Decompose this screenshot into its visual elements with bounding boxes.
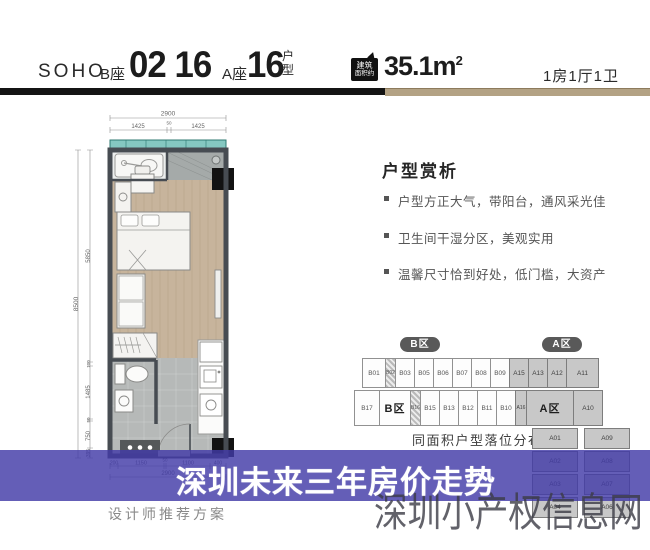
bullet-square-icon	[384, 269, 389, 274]
block-b-label: B座	[100, 63, 125, 84]
toilet-bowl	[126, 366, 148, 382]
unit-cell: B05	[414, 358, 434, 388]
unit-cell: A11	[566, 358, 599, 388]
unit-cell: B03	[395, 358, 415, 388]
unit-type-char-1: 户	[282, 49, 294, 63]
bullet-square-icon	[384, 233, 389, 238]
unit-cell: A13	[528, 358, 548, 388]
headline-banner-title: 深圳未来三年房价走势	[176, 457, 496, 502]
zone-a-label-cell: A区	[526, 390, 574, 426]
room-summary: 1房1厅1卫	[543, 65, 619, 86]
zone-b-pill: B区	[400, 337, 440, 352]
area-number: 35.1m	[384, 51, 456, 81]
area-badge-line2: 面积约	[351, 70, 378, 78]
distribution-row-2: B17 B区 B16 B15 B13 B12 B11 B10 A16 A区 A1…	[354, 390, 603, 426]
unit-cell: B13	[439, 390, 459, 426]
block-a-label: A座	[222, 63, 247, 84]
unit-cell: B06	[433, 358, 453, 388]
dim-left-e: 750	[86, 430, 92, 441]
dim-left-a: 5850	[86, 249, 92, 263]
dim-left-total: 8500	[73, 296, 80, 311]
analysis-bullet-3: 温馨尺寸恰到好处，低门槛，大资产	[384, 264, 634, 283]
sofa-cushion-1	[119, 276, 143, 300]
area-superscript: 2	[456, 53, 462, 68]
analysis-bullet-2: 卫生间干湿分区，美观实用	[384, 228, 634, 247]
water-heater	[212, 156, 220, 164]
area-badge: 建筑 面积约	[351, 58, 378, 81]
unit-cell: B08	[471, 358, 491, 388]
analysis-bullet-1-text: 户型方正大气，带阳台，通风采光佳	[398, 191, 606, 210]
dim-top-c: 1425	[191, 124, 205, 130]
analysis-bullet-2-text: 卫生间干湿分区，美观实用	[398, 228, 554, 247]
unit-cell: B15	[420, 390, 440, 426]
toilet-tank	[115, 364, 125, 384]
bullet-square-icon	[384, 196, 389, 201]
block-a-unit-number: 16	[247, 44, 284, 86]
chair	[135, 166, 150, 174]
dim-left-d: 50	[86, 417, 91, 423]
kitchen-sink	[200, 366, 222, 388]
dim-top-a: 1425	[131, 124, 145, 130]
area-value: 35.1m2	[384, 51, 462, 82]
zone-b-label-cell: B区	[379, 390, 411, 426]
dim-top-total: 2900	[161, 111, 176, 118]
unit-cell: B07	[452, 358, 472, 388]
brand-logo: SOHO	[38, 61, 106, 83]
stove	[200, 394, 222, 416]
unit-cell: B17	[354, 390, 380, 426]
unit-cell: A10	[573, 390, 603, 426]
unit-cell: B09	[490, 358, 510, 388]
unit-cell: B12	[458, 390, 478, 426]
distribution-row-1: B01 B02 B03 B05 B06 B07 B08 B09 A15 A13 …	[362, 358, 599, 388]
unit-cell: B01	[362, 358, 386, 388]
unit-cell: A09	[584, 428, 630, 449]
fridge	[115, 182, 131, 212]
dim-left-c: 1485	[86, 385, 92, 399]
area-badge-line1: 建筑	[351, 61, 378, 70]
dim-top-b: 50	[166, 121, 172, 126]
analysis-bullet-1: 户型方正大气，带阳台，通风采光佳	[384, 191, 634, 210]
unit-cell: B11	[477, 390, 497, 426]
table	[131, 174, 154, 193]
shaft-block-top	[212, 168, 234, 190]
unit-cell: A15	[509, 358, 529, 388]
kitchen-faucet	[218, 371, 221, 374]
unit-type-char-2: 型	[282, 63, 294, 77]
brochure-page: SOHO B座 02 16 A座 16 户 型 建筑 面积约 35.1m2 1房…	[0, 0, 650, 550]
designer-plan-caption: 设计师推荐方案	[108, 504, 227, 524]
unit-type-suffix: 户 型	[282, 49, 294, 77]
pillow-right	[142, 215, 159, 226]
analysis-title: 户型赏析	[382, 157, 458, 182]
floorplan-drawing: 2900 1425 50 1425 8500 5850 100 1485 50 …	[66, 108, 244, 488]
sofa-cushion-2	[119, 302, 143, 326]
zone-a-pill: A区	[542, 337, 582, 352]
block-b-unit-numbers: 02 16	[129, 44, 211, 86]
unit-cell: B10	[496, 390, 516, 426]
unit-cell: A12	[547, 358, 567, 388]
header-divider-right	[385, 88, 650, 96]
pillow-left	[121, 215, 138, 226]
analysis-bullet-3-text: 温馨尺寸恰到好处，低门槛，大资产	[398, 264, 606, 283]
shower-basin	[115, 390, 133, 412]
unit-cell: A01	[532, 428, 578, 449]
kitchen-cabinet	[200, 342, 222, 362]
dim-left-b: 100	[86, 360, 91, 368]
tv-unit	[215, 270, 221, 318]
header-divider-left	[0, 88, 385, 95]
